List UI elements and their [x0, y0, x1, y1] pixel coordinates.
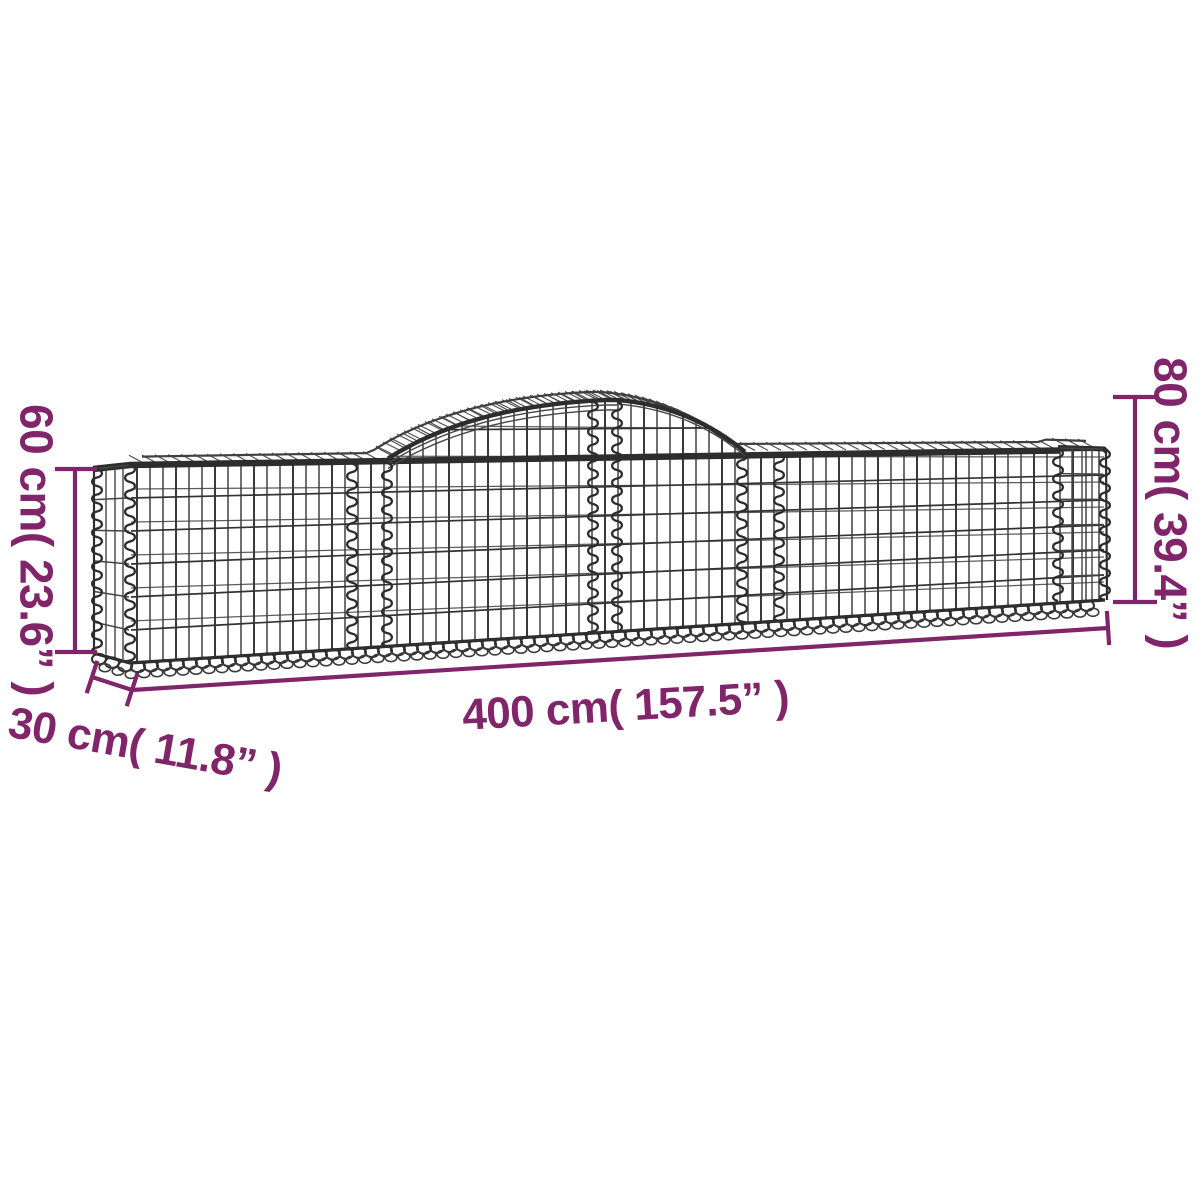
dimension-label-height-right: 80 cm( 39.4” ): [1145, 357, 1195, 649]
spiral-joint: [612, 402, 622, 632]
gabion-diagram-svg: [0, 0, 1200, 1200]
front-top-rim: [93, 451, 1060, 470]
spiral-joint: [737, 452, 747, 624]
spiral-joint: [588, 402, 598, 633]
dimension-line-length: [132, 611, 1109, 690]
gabion-basket-drawing: [92, 390, 1110, 678]
product-dimension-diagram: 60 cm( 23.6” ) 80 cm( 39.4” ) 30 cm( 11.…: [0, 0, 1200, 1200]
spiral-joint: [347, 464, 357, 649]
dimension-label-height-left: 60 cm( 23.6” ): [11, 404, 61, 696]
end-face-mesh: [95, 448, 1103, 663]
